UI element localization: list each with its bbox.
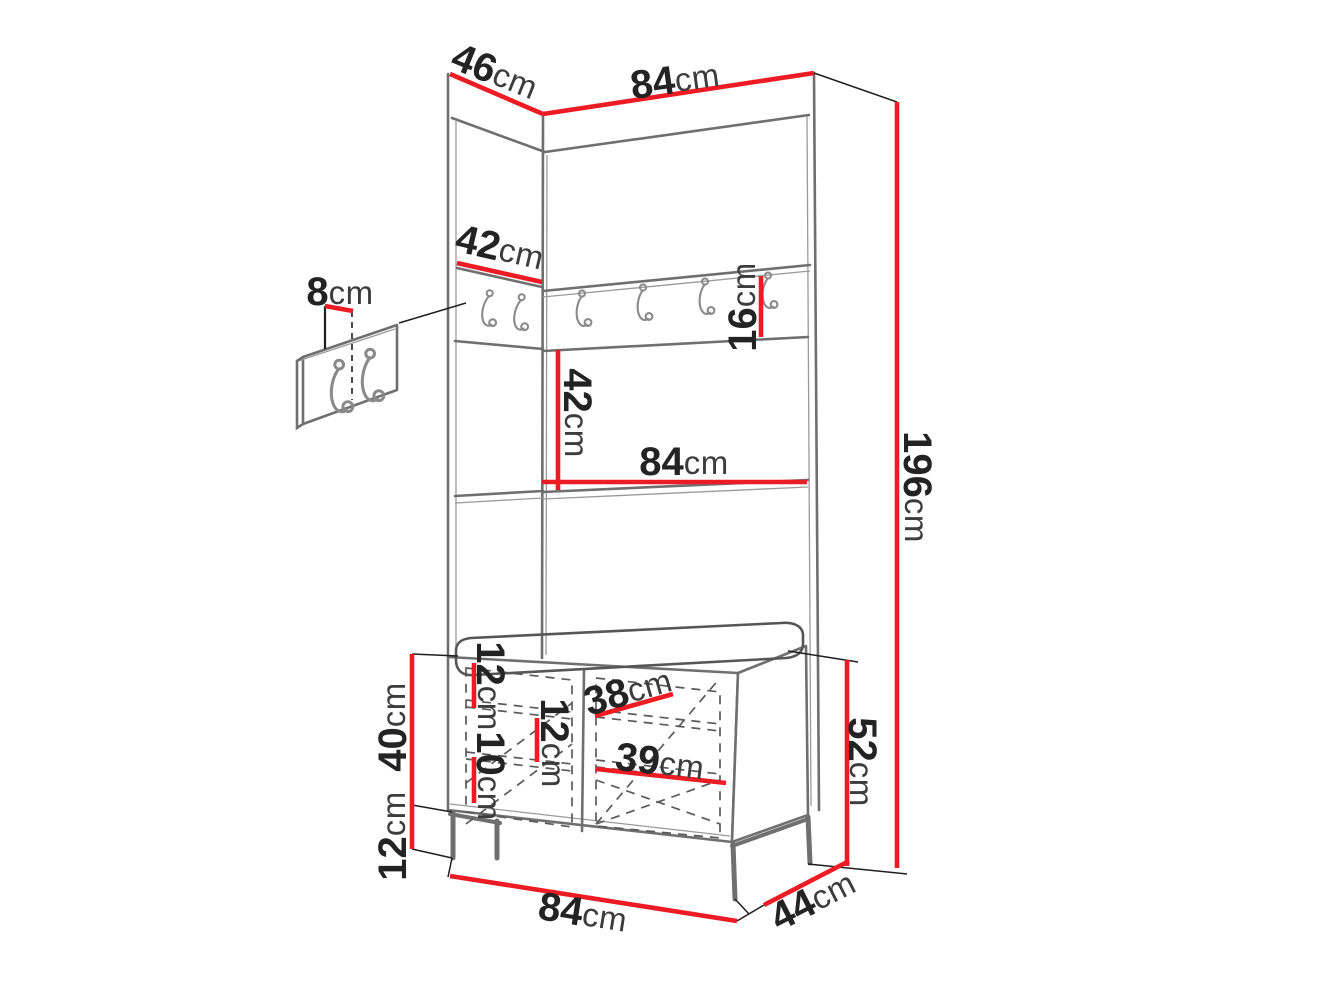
hook-icon <box>700 279 715 314</box>
dim-label-door-mid: 12cm <box>532 698 576 788</box>
dim-label-middle-height: 42cm <box>555 368 599 458</box>
dim-label-bench-total: 52cm <box>840 717 884 807</box>
dim-label-legs-height: 12cm <box>371 791 415 881</box>
dim-label-rail-height: 16cm <box>721 262 765 352</box>
hook-icon <box>638 285 653 320</box>
dim-label-depth-top: 46cm <box>445 35 544 109</box>
dim-label-door-low: 10cm <box>468 731 512 821</box>
dim-label-width-top: 84cm <box>628 52 723 108</box>
dim-label-total-height: 196cm <box>895 431 939 543</box>
detail-hook-panel <box>297 303 466 428</box>
hook-icon <box>763 273 778 308</box>
dim-label-door-top: 12cm <box>468 641 512 731</box>
hook-icon <box>481 290 499 327</box>
dim-label-middle-width: 84cm <box>639 440 729 484</box>
dim-label-bench-width: 84cm <box>535 884 630 941</box>
bench-side-face <box>732 646 808 842</box>
dimension-diagram: 46cm 84cm 42cm 8cm 16cm 42cm 84cm 196cm … <box>0 0 1320 990</box>
dim-label-bench-body: 40cm <box>371 682 415 772</box>
hook-icon <box>577 291 592 326</box>
hook-icon <box>513 294 531 331</box>
dim-label-detail-offset: 8cm <box>306 270 373 314</box>
diagram-canvas: 46cm 84cm 42cm 8cm 16cm 42cm 84cm 196cm … <box>0 0 1320 990</box>
dim-label-bench-depth: 44cm <box>763 860 863 940</box>
